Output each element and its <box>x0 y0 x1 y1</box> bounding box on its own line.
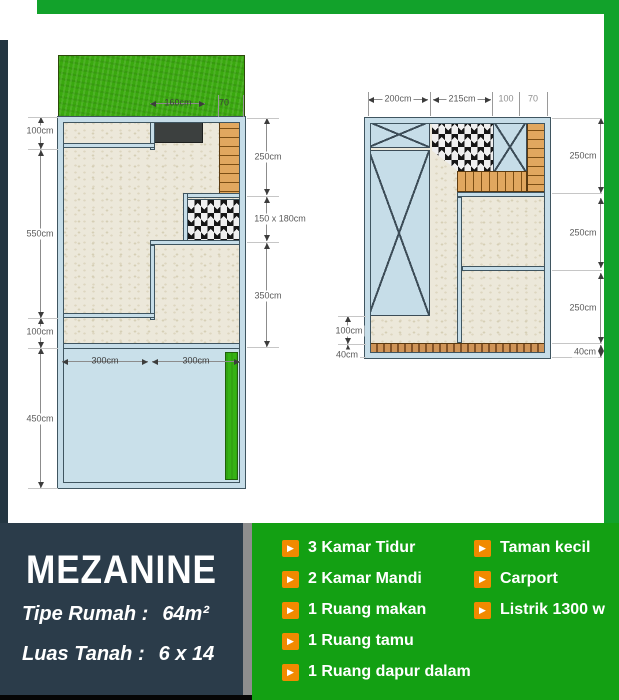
dim-label: 100 <box>496 94 515 105</box>
feature-item: ▶ 2 Kamar Mandi <box>282 570 471 588</box>
flyer-canvas: 100cm 550cm 100cm 450cm 250cm 150 x 180c… <box>0 0 619 700</box>
feature-item: ▶ 3 Kamar Tidur <box>282 539 471 557</box>
mezzanine-plan <box>365 118 550 358</box>
bottom-black-strip <box>0 695 252 700</box>
outer-walls <box>365 118 550 358</box>
features-column-2: ▶ Taman kecil ▶ Carport ▶ Listrik 1300 w <box>474 539 605 619</box>
play-bullet-icon: ▶ <box>282 602 299 619</box>
features-column-1: ▶ 3 Kamar Tidur ▶ 2 Kamar Mandi ▶ 1 Ruan… <box>282 539 471 681</box>
dim-guide <box>28 318 58 319</box>
dim-label: 300cm <box>180 356 211 367</box>
dim-tick <box>430 92 431 116</box>
dim-label: 160cm <box>162 98 193 109</box>
dim-label: 150 x 180cm <box>252 214 308 225</box>
outer-walls <box>58 117 245 488</box>
dim-guide <box>28 149 58 150</box>
dim-label: 250cm <box>567 228 598 239</box>
dim-label: 70 <box>217 98 231 109</box>
spec-label: Luas Tanah : <box>22 643 145 665</box>
spec-tipe-rumah: Tipe Rumah :64m² <box>22 603 209 626</box>
dim-label: 250cm <box>252 152 283 163</box>
feature-label: 1 Ruang makan <box>308 601 426 619</box>
right-green-strip <box>604 14 619 523</box>
feature-label: 3 Kamar Tidur <box>308 539 415 557</box>
dim-tick <box>547 92 548 116</box>
feature-label: 2 Kamar Mandi <box>308 570 422 588</box>
dim-tick <box>243 95 244 117</box>
info-panel: MEZANINE Tipe Rumah :64m² Luas Tanah :6 … <box>0 523 243 695</box>
feature-item: ▶ 1 Ruang dapur dalam <box>282 663 471 681</box>
dim-label: 215cm <box>446 94 477 105</box>
play-bullet-icon: ▶ <box>474 540 491 557</box>
dim-line <box>600 118 601 193</box>
play-bullet-icon: ▶ <box>282 571 299 588</box>
dim-guide <box>552 343 602 344</box>
feature-label: Taman kecil <box>500 539 590 557</box>
dim-tick <box>519 92 520 116</box>
dim-guide <box>247 347 279 348</box>
dim-label: 250cm <box>567 151 598 162</box>
feature-item: ▶ 1 Ruang tamu <box>282 632 471 650</box>
dim-label: 450cm <box>24 414 55 425</box>
dim-guide <box>552 270 602 271</box>
spec-label: Tipe Rumah : <box>22 603 148 625</box>
dim-tick <box>492 92 493 116</box>
feature-label: Carport <box>500 570 558 588</box>
dim-label: 300cm <box>89 356 120 367</box>
dim-label: 100cm <box>333 326 364 337</box>
spec-value: 64m² <box>162 603 209 625</box>
left-dark-strip <box>0 40 8 523</box>
dim-line <box>600 273 601 343</box>
dim-tick <box>368 92 369 116</box>
spec-luas-tanah: Luas Tanah :6 x 14 <box>22 643 214 666</box>
dim-line <box>600 345 601 357</box>
dim-guide <box>552 118 602 119</box>
dim-label: 70 <box>526 94 540 105</box>
feature-item: ▶ 1 Ruang makan <box>282 601 471 619</box>
play-bullet-icon: ▶ <box>474 602 491 619</box>
dim-guide <box>247 118 279 119</box>
play-bullet-icon: ▶ <box>282 633 299 650</box>
plan-title: MEZANINE <box>26 548 217 593</box>
play-bullet-icon: ▶ <box>474 571 491 588</box>
dim-line <box>600 198 601 268</box>
ground-floor-plan <box>58 55 245 488</box>
dim-label: 550cm <box>24 229 55 240</box>
feature-label: 1 Ruang tamu <box>308 632 414 650</box>
feature-label: Listrik 1300 w <box>500 601 605 619</box>
feature-label: 1 Ruang dapur dalam <box>308 663 471 681</box>
dim-guide <box>28 348 58 349</box>
dim-guide <box>552 193 602 194</box>
dim-guide <box>28 488 58 489</box>
dim-guide <box>28 117 58 118</box>
dim-guide <box>338 344 366 345</box>
panel-divider <box>243 523 252 695</box>
dim-label: 100cm <box>24 327 55 338</box>
feature-item: ▶ Taman kecil <box>474 539 605 557</box>
dim-label: 350cm <box>252 291 283 302</box>
feature-item: ▶ Listrik 1300 w <box>474 601 605 619</box>
play-bullet-icon: ▶ <box>282 664 299 681</box>
dim-guide <box>247 242 279 243</box>
dim-label: 40cm <box>334 350 360 361</box>
dim-label: 100cm <box>24 126 55 137</box>
dim-label: 250cm <box>567 303 598 314</box>
dim-label: 200cm <box>382 94 413 105</box>
feature-item: ▶ Carport <box>474 570 605 588</box>
dim-guide <box>338 316 366 317</box>
dim-guide <box>247 196 279 197</box>
top-green-bar <box>37 0 619 14</box>
spec-value: 6 x 14 <box>159 643 215 665</box>
features-panel: ▶ 3 Kamar Tidur ▶ 2 Kamar Mandi ▶ 1 Ruan… <box>252 523 619 700</box>
play-bullet-icon: ▶ <box>282 540 299 557</box>
dim-label: 40cm <box>572 347 598 358</box>
